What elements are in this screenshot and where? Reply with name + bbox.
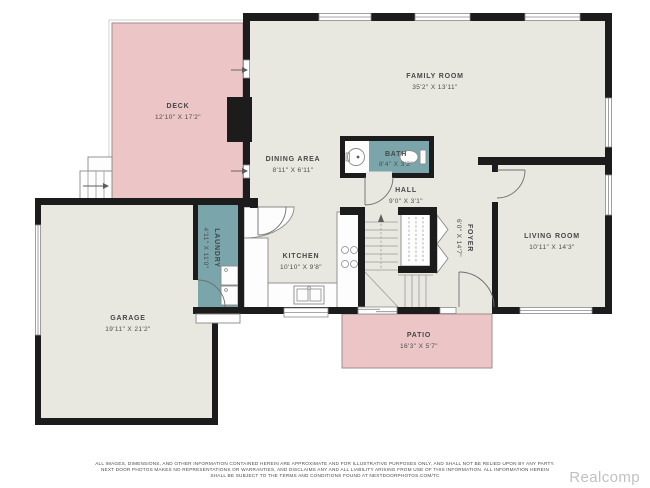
disclaimer-line-1: ALL IMAGES, DIMENSIONS, AND OTHER INFORM…: [95, 461, 555, 466]
window: [319, 14, 371, 21]
patio-surface: [342, 314, 492, 368]
disclaimer-line-3: SHALL BE SUBJECT TO THE TERMS AND CONDIT…: [210, 473, 440, 478]
realcomp-watermark: Realcomp: [569, 469, 640, 486]
floor-plan-image: DECK 12'10" X 17'2" PATIO 16'3" X 5'7": [0, 0, 650, 488]
window: [606, 175, 612, 215]
room-laundry: LAUNDRY 4'11" X 11'0": [198, 205, 238, 307]
kitchen-dims: 10'10" X 9'8": [280, 264, 322, 271]
disclaimer-line-2: NEXT DOOR PHOTOS MAKES NO REPRESENTATION…: [101, 467, 549, 472]
deck-stairs-icon: [80, 171, 112, 201]
dining-area-label: DINING AREA: [266, 156, 321, 163]
laundry-label: LAUNDRY: [213, 228, 220, 268]
room-deck: DECK 12'10" X 17'2": [80, 20, 246, 203]
dining-area-dims: 8'11" X 6'11": [273, 167, 314, 174]
family-room-dims: 35'2" X 13'11": [412, 84, 458, 91]
garage-label: GARAGE: [110, 315, 146, 322]
deck-label: DECK: [166, 103, 189, 110]
sliding-door: [358, 307, 397, 314]
window: [525, 14, 580, 21]
foyer-dims: 6'0" X 14'7": [455, 219, 462, 257]
window: [415, 14, 470, 21]
footer: ALL IMAGES, DIMENSIONS, AND OTHER INFORM…: [95, 461, 640, 486]
fireplace: [227, 97, 252, 142]
garage-window: [36, 225, 41, 335]
hall-label: HALL: [395, 187, 417, 194]
window: [606, 98, 612, 147]
deck-landing: [88, 157, 112, 171]
patio-dims: 16'3" X 5'7": [400, 343, 438, 350]
floor-plan-svg: DECK 12'10" X 17'2" PATIO 16'3" X 5'7": [0, 0, 650, 488]
garden-window: [284, 308, 328, 317]
patio-label: PATIO: [407, 332, 431, 339]
laundry-dims: 4'11" X 11'0": [202, 228, 209, 269]
garage-step: [196, 314, 240, 323]
window: [520, 308, 592, 314]
living-room-label: LIVING ROOM: [524, 233, 580, 240]
family-room-label: FAMILY ROOM: [406, 73, 463, 80]
garage-floor: [35, 200, 218, 425]
room-bath: BATH 8'4" X 3'2": [340, 136, 434, 179]
kitchen-label: KITCHEN: [283, 253, 320, 260]
garage-dims: 19'11" X 21'2": [105, 326, 151, 333]
sidelight-window: [440, 308, 456, 314]
right-counter: [337, 212, 360, 308]
room-patio: PATIO 16'3" X 5'7": [342, 314, 492, 368]
bath-dims: 8'4" X 3'2": [379, 161, 413, 168]
left-counter: [244, 238, 268, 308]
kitchen-sink-icon: [294, 286, 324, 304]
bath-label: BATH: [385, 151, 407, 158]
bath-door-opening: [366, 172, 392, 179]
living-room-dims: 10'11" X 14'3": [529, 244, 575, 251]
deck-surface: [112, 23, 243, 200]
foyer-label: FOYER: [466, 224, 473, 252]
hall-dims: 9'0" X 3'1": [389, 198, 423, 205]
deck-dims: 12'10" X 17'2": [155, 114, 201, 121]
